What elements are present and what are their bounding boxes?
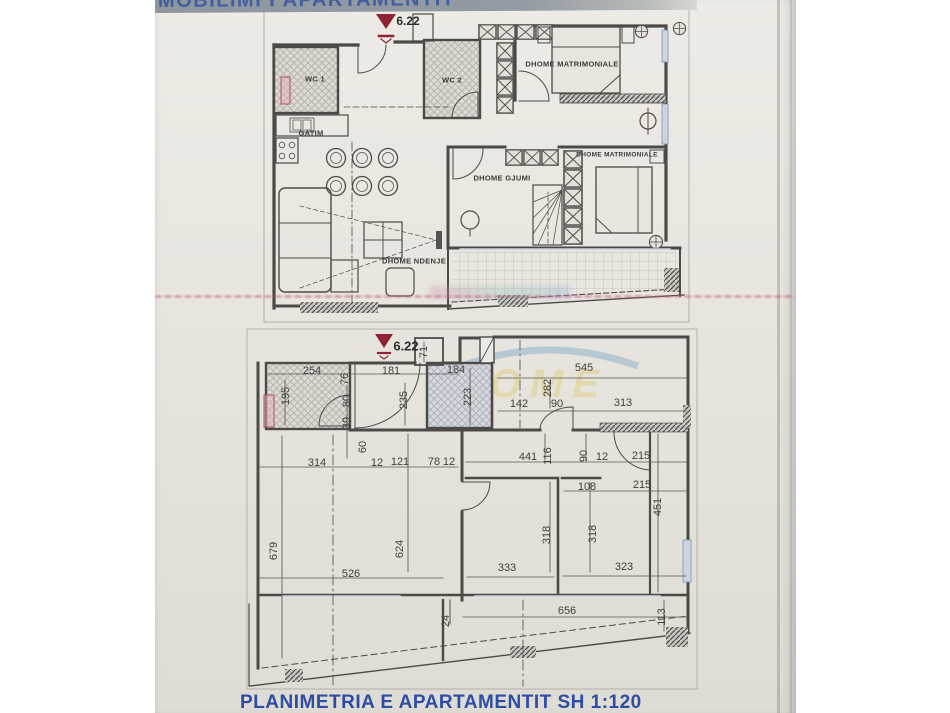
dim-label: 314 — [308, 457, 326, 469]
dim-label: 113 — [656, 608, 668, 626]
dim-label: 254 — [303, 365, 321, 377]
dim-label: 526 — [342, 568, 360, 580]
dim-label: 184 — [447, 364, 465, 376]
dim-label: 318 — [541, 526, 553, 544]
dim-label: 223 — [462, 388, 474, 406]
room-label-bedroom-3: DHOME MATRIMONIALE — [576, 152, 657, 159]
plan-title: PLANIMETRIA E APARTAMENTIT SH 1:120 — [240, 692, 642, 713]
scan-line — [155, 295, 795, 298]
dim-label: 12 — [596, 451, 608, 463]
dim-label: 333 — [498, 562, 516, 574]
dim-label: 215 — [633, 479, 651, 491]
dim-label: 24 — [440, 615, 452, 627]
dim-label: 12 — [371, 457, 383, 469]
paper-fold-line — [777, 0, 780, 713]
dim-label: 71 — [418, 346, 430, 358]
dim-label: 318 — [587, 525, 599, 543]
dim-label: 679 — [268, 542, 280, 560]
dim-label: 142 — [510, 398, 528, 410]
photographed-plan-sheet: HOME — [0, 0, 950, 713]
dim-label: 656 — [558, 605, 576, 617]
dim-label: 624 — [394, 540, 406, 558]
room-label-kitchen: GATIM — [298, 129, 323, 138]
dim-label: 12 — [443, 456, 455, 468]
dim-label: 181 — [382, 365, 400, 377]
dim-label: 235 — [398, 391, 410, 409]
plan1-drawing — [264, 9, 689, 322]
room-label-bedroom-2: DHOME GJUMI — [473, 174, 530, 183]
dim-label: 282 — [542, 379, 554, 397]
dim-label: 441 — [519, 451, 537, 463]
room-label-wc2: WC 2 — [442, 76, 462, 85]
furnishing-title: MOBILIMI I APARTAMENTIT — [158, 0, 456, 13]
level-marker-triangle — [375, 334, 393, 359]
dim-label: 121 — [391, 456, 409, 468]
dim-label: 116 — [542, 447, 554, 465]
dim-label: 78 — [428, 456, 440, 468]
dim-label: 323 — [615, 561, 633, 573]
dim-label: 76 — [339, 373, 351, 385]
dim-label: 80 — [341, 395, 353, 407]
dim-label: 195 — [280, 387, 292, 405]
dim-label: 90 — [578, 450, 590, 462]
dim-label: 60 — [357, 441, 369, 453]
room-label-bedroom-1: DHOME MATRIMONIALE — [525, 60, 618, 69]
dim-label: 451 — [652, 498, 664, 516]
dim-label: 108 — [578, 481, 596, 493]
paper-edge-line — [790, 0, 792, 713]
dim-label: 39 — [341, 417, 353, 429]
dim-label: 90 — [551, 398, 563, 410]
dim-label: 545 — [575, 362, 593, 374]
level-marker: 6.22 — [393, 339, 418, 354]
level-marker: 6.22 — [396, 14, 419, 28]
level-marker-triangle — [376, 14, 396, 43]
dim-label: 313 — [614, 397, 632, 409]
floor-plan-drawing — [0, 0, 950, 713]
room-label-wc1: WC 1 — [305, 75, 325, 84]
plan2-drawing — [247, 329, 697, 689]
room-label-living: DHOME NDENJE — [382, 257, 446, 266]
dim-label: 215 — [632, 450, 650, 462]
